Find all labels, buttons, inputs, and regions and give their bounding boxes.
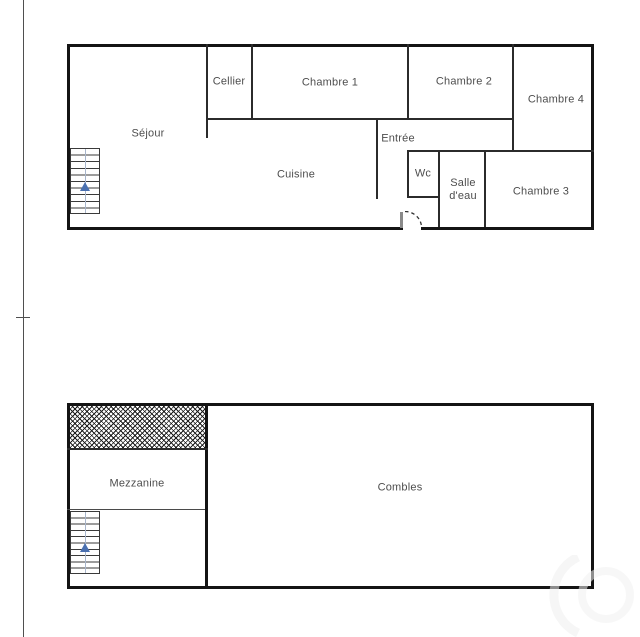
f1-stairs-center-line: [85, 149, 86, 213]
f1-wall-outer-bottom-right: [421, 227, 594, 230]
f1-stairs-up-arrow-icon: [80, 182, 90, 191]
f1-wall-salledeau-left: [438, 150, 440, 227]
room-label-cellier: Cellier: [213, 75, 246, 88]
room-label-mezzanine: Mezzanine: [110, 477, 165, 490]
f2-wall-mezzanine-combles-divider: [205, 403, 208, 589]
room-label-combles: Combles: [378, 481, 423, 494]
f2-mezzanine-floor-line: [67, 509, 205, 510]
watermark: [548, 555, 640, 637]
room-label-wc: Wc: [415, 167, 431, 180]
f1-wall-sejour-stub: [206, 118, 208, 138]
f2-void-hatch-area: [70, 406, 205, 448]
f1-wall-chambre2-chambre4-divider: [512, 44, 514, 152]
page-frame-line: [23, 0, 24, 637]
f1-wall-salledeau-right: [484, 150, 486, 227]
page-frame-tick: [16, 317, 30, 318]
room-label-chambre3: Chambre 3: [513, 185, 569, 198]
f1-wall-horizontal-mid: [206, 118, 514, 120]
front-door-swing-icon: [404, 211, 422, 233]
f1-wall-cellier-left: [206, 44, 208, 120]
room-label-entree: Entrée: [381, 132, 415, 145]
room-label-chambre1: Chambre 1: [302, 76, 358, 89]
f1-wall-chambre1-chambre2-divider: [407, 44, 409, 120]
room-label-cuisine: Cuisine: [277, 168, 315, 181]
f1-wall-outer-top: [67, 44, 594, 47]
room-label-chambre2: Chambre 2: [436, 75, 492, 88]
f1-wall-cellier-right: [251, 44, 253, 120]
f1-wall-horizontal-lower: [407, 150, 594, 152]
floor-plan-canvas: Séjour Cellier Chambre 1 Chambre 2 Chamb…: [0, 0, 640, 637]
f1-wall-wc-bottom: [407, 196, 440, 198]
f2-stairs: [70, 511, 100, 574]
room-label-sejour: Séjour: [132, 127, 165, 140]
room-label-chambre4: Chambre 4: [528, 93, 584, 106]
f1-stairs: [70, 148, 100, 214]
f1-wall-entree-left: [376, 118, 378, 199]
front-door-leaf: [400, 212, 403, 228]
f1-wall-outer-right: [591, 44, 594, 230]
f1-wall-wc-left: [407, 150, 409, 198]
f1-wall-outer-bottom-left: [67, 227, 403, 230]
f2-wall-hatch-bottom: [67, 448, 208, 450]
f2-wall-outer-bottom: [67, 586, 594, 589]
f2-stairs-up-arrow-icon: [80, 543, 90, 552]
room-label-salle-deau: Salle d'eau: [444, 177, 482, 203]
